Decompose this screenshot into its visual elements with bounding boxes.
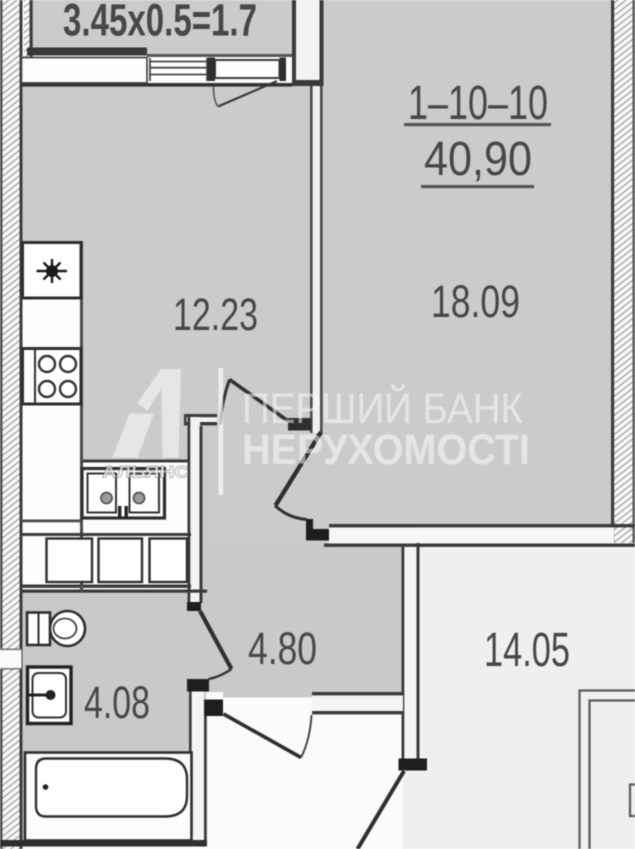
svg-text:АЛЬЯНС: АЛЬЯНС [102,463,189,482]
svg-text:НЕРУХОМОСТІ: НЕРУХОМОСТІ [242,426,530,474]
svg-text:4.80: 4.80 [248,623,317,674]
svg-text:18.09: 18.09 [431,276,520,327]
svg-text:12.23: 12.23 [173,289,258,340]
svg-text:40,90: 40,90 [424,133,532,186]
svg-text:4.08: 4.08 [84,677,150,728]
svg-text:3.45x0.5=1.7: 3.45x0.5=1.7 [63,0,257,46]
svg-text:1–10–10: 1–10–10 [408,77,548,130]
svg-text:14.05: 14.05 [484,624,570,677]
